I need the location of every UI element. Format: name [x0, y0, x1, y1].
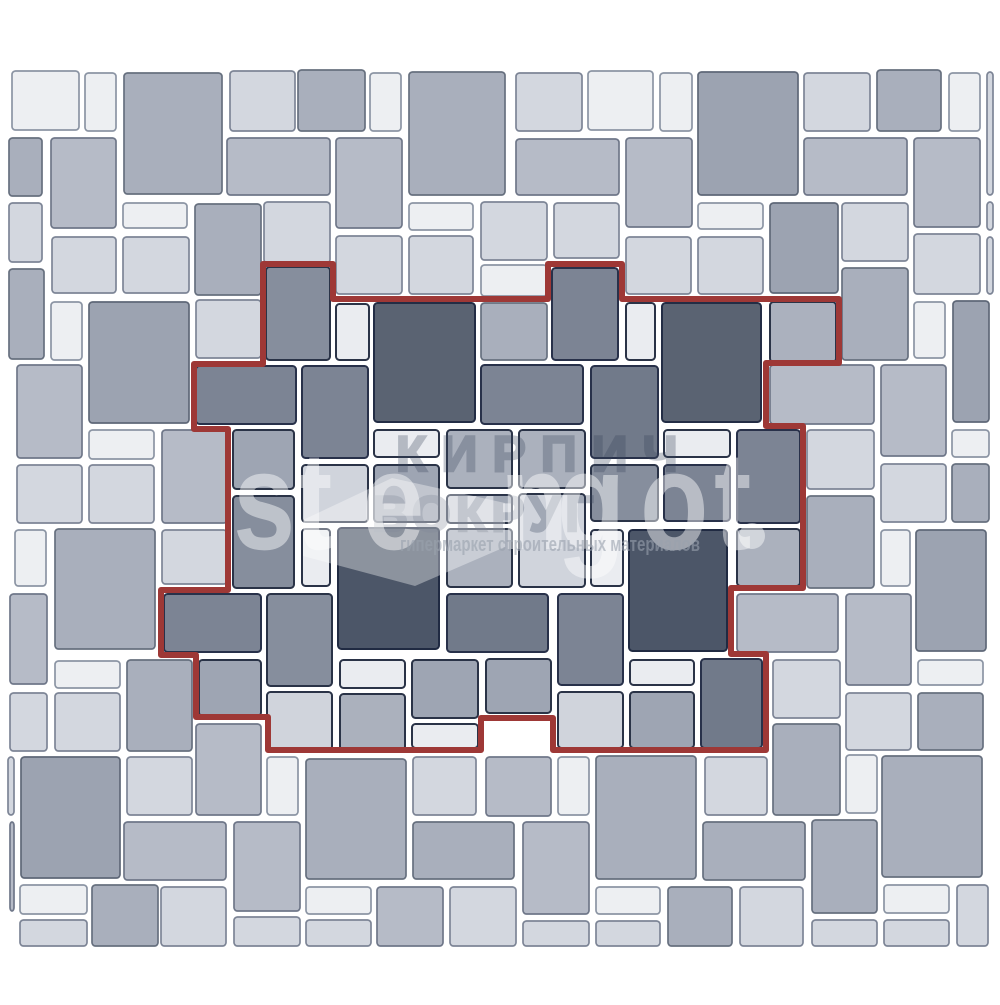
- svg-text:s: s: [233, 422, 295, 579]
- svg-text:t: t: [714, 422, 751, 579]
- svg-text:t: t: [295, 422, 332, 579]
- svg-text:гипермаркет строительных матер: гипермаркет строительных материалов: [400, 534, 700, 556]
